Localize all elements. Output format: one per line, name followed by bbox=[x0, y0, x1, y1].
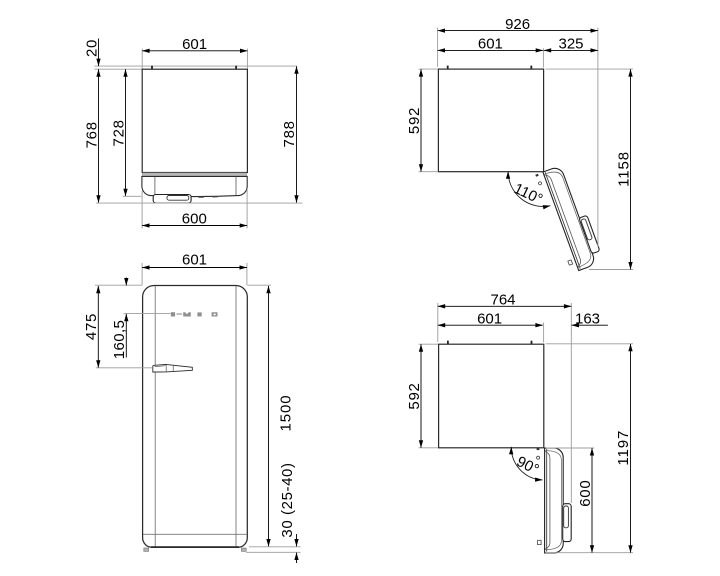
svg-text:1158: 1158 bbox=[616, 151, 633, 187]
svg-text:764: 764 bbox=[490, 291, 515, 308]
svg-text:788: 788 bbox=[281, 120, 298, 147]
svg-text:325: 325 bbox=[558, 36, 583, 53]
svg-text:160,5: 160,5 bbox=[111, 320, 128, 360]
svg-text:1500: 1500 bbox=[277, 395, 294, 432]
svg-text:90°: 90° bbox=[514, 453, 542, 478]
svg-text:768: 768 bbox=[83, 121, 100, 148]
svg-text:1197: 1197 bbox=[615, 430, 632, 466]
svg-text:475: 475 bbox=[83, 313, 100, 340]
svg-text:926: 926 bbox=[505, 16, 530, 33]
svg-text:592: 592 bbox=[406, 107, 423, 134]
svg-text:163: 163 bbox=[575, 310, 600, 327]
svg-text:30 (25-40): 30 (25-40) bbox=[279, 462, 296, 537]
svg-text:20: 20 bbox=[83, 39, 100, 57]
svg-text:601: 601 bbox=[182, 252, 207, 269]
svg-text:600: 600 bbox=[577, 480, 594, 507]
svg-text:728: 728 bbox=[110, 119, 127, 146]
svg-text:592: 592 bbox=[406, 382, 423, 409]
svg-text:110°: 110° bbox=[511, 180, 545, 208]
svg-text:601: 601 bbox=[182, 36, 207, 53]
svg-text:601: 601 bbox=[477, 310, 502, 327]
svg-text:600: 600 bbox=[182, 211, 207, 228]
svg-text:601: 601 bbox=[478, 36, 503, 53]
